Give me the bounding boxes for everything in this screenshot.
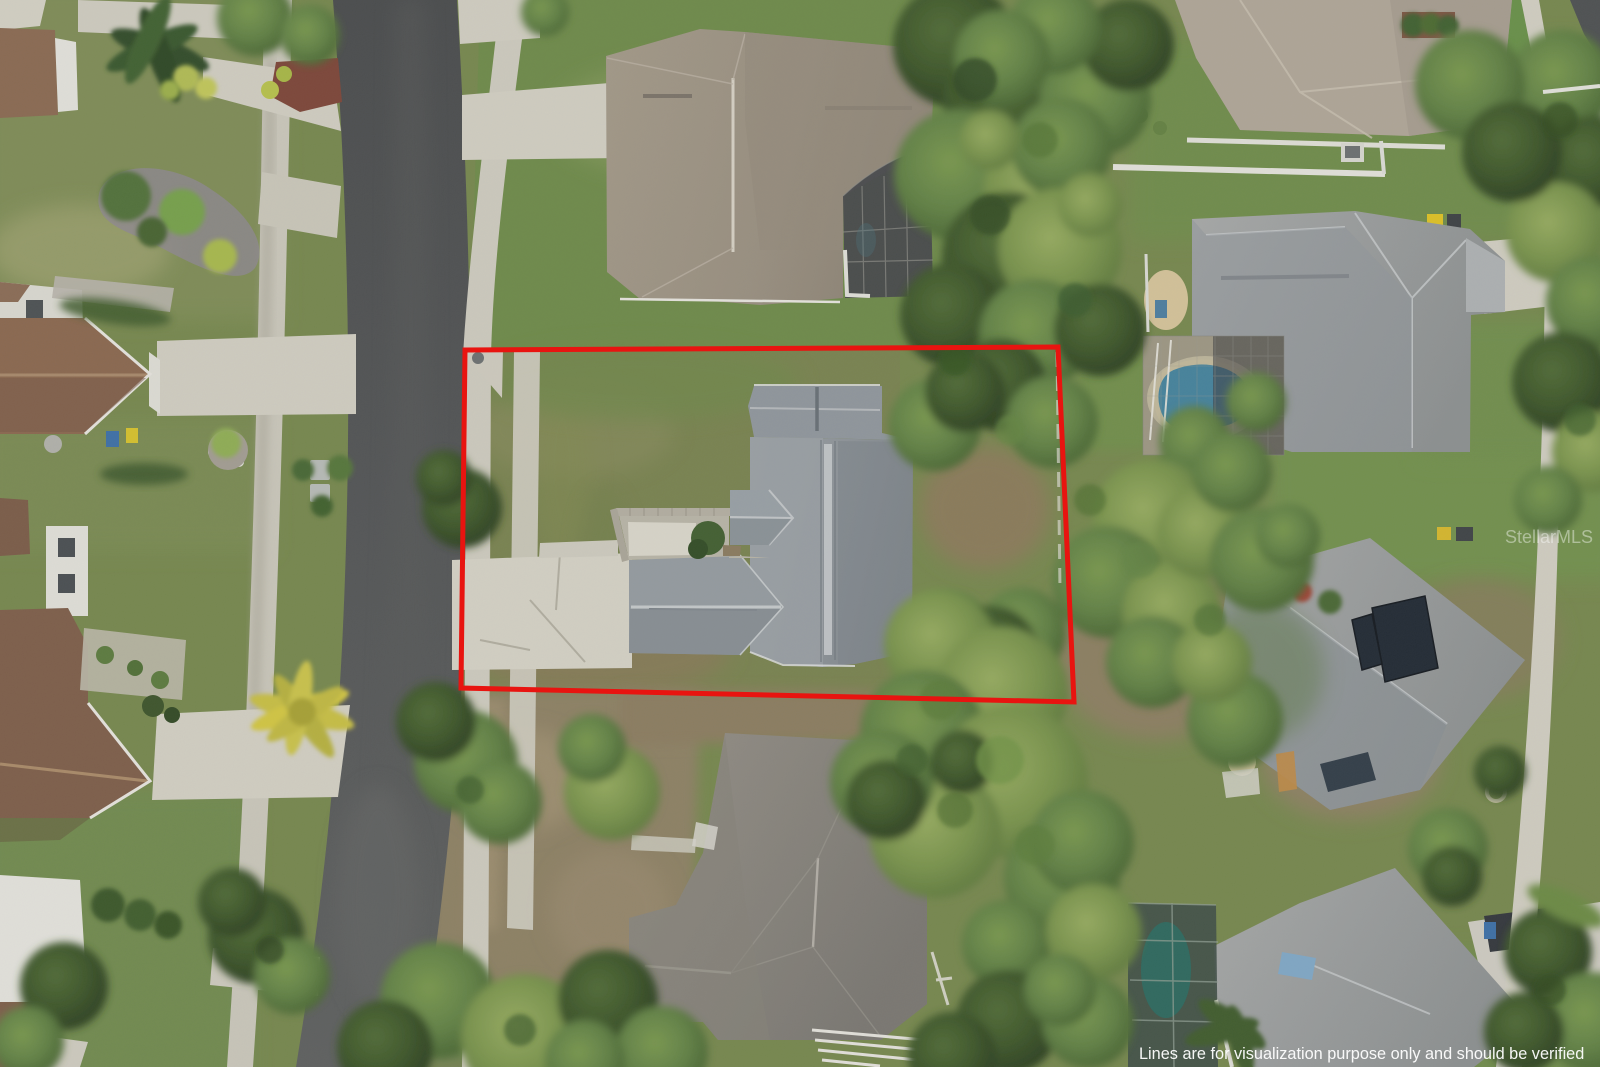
svg-text:StellarMLS: StellarMLS [1505,527,1593,547]
svg-text:Lines are for visualization pu: Lines are for visualization purpose only… [1139,1045,1584,1063]
